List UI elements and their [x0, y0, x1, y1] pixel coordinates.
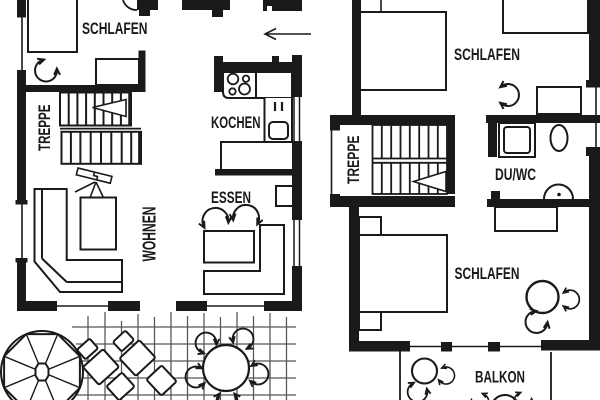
- svg-text:DU/WC: DU/WC: [495, 166, 536, 184]
- svg-text:ESSEN: ESSEN: [211, 189, 251, 207]
- svg-text:WOHNEN: WOHNEN: [140, 207, 160, 262]
- svg-text:TREPPE: TREPPE: [344, 136, 363, 185]
- svg-text:SCHLAFEN: SCHLAFEN: [82, 20, 148, 38]
- svg-text:SCHLAFEN: SCHLAFEN: [454, 46, 520, 64]
- svg-text:BALKON: BALKON: [475, 369, 525, 387]
- svg-text:TREPPE: TREPPE: [35, 105, 54, 152]
- svg-text:SCHLAFEN: SCHLAFEN: [455, 265, 520, 283]
- svg-text:KOCHEN: KOCHEN: [211, 114, 261, 132]
